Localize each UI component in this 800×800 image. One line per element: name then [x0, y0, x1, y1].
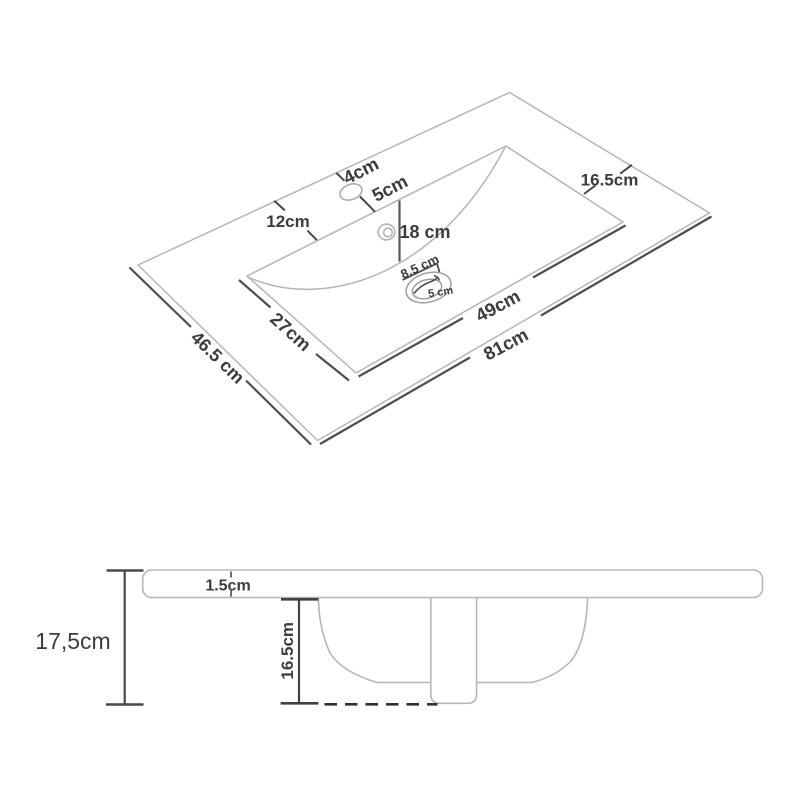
svg-text:18 cm: 18 cm [400, 222, 451, 242]
svg-text:17,5cm: 17,5cm [35, 628, 110, 654]
svg-text:16.5cm: 16.5cm [581, 171, 639, 190]
svg-text:1.5cm: 1.5cm [205, 578, 250, 595]
svg-text:16.5cm: 16.5cm [278, 622, 297, 680]
svg-text:12cm: 12cm [266, 212, 309, 231]
